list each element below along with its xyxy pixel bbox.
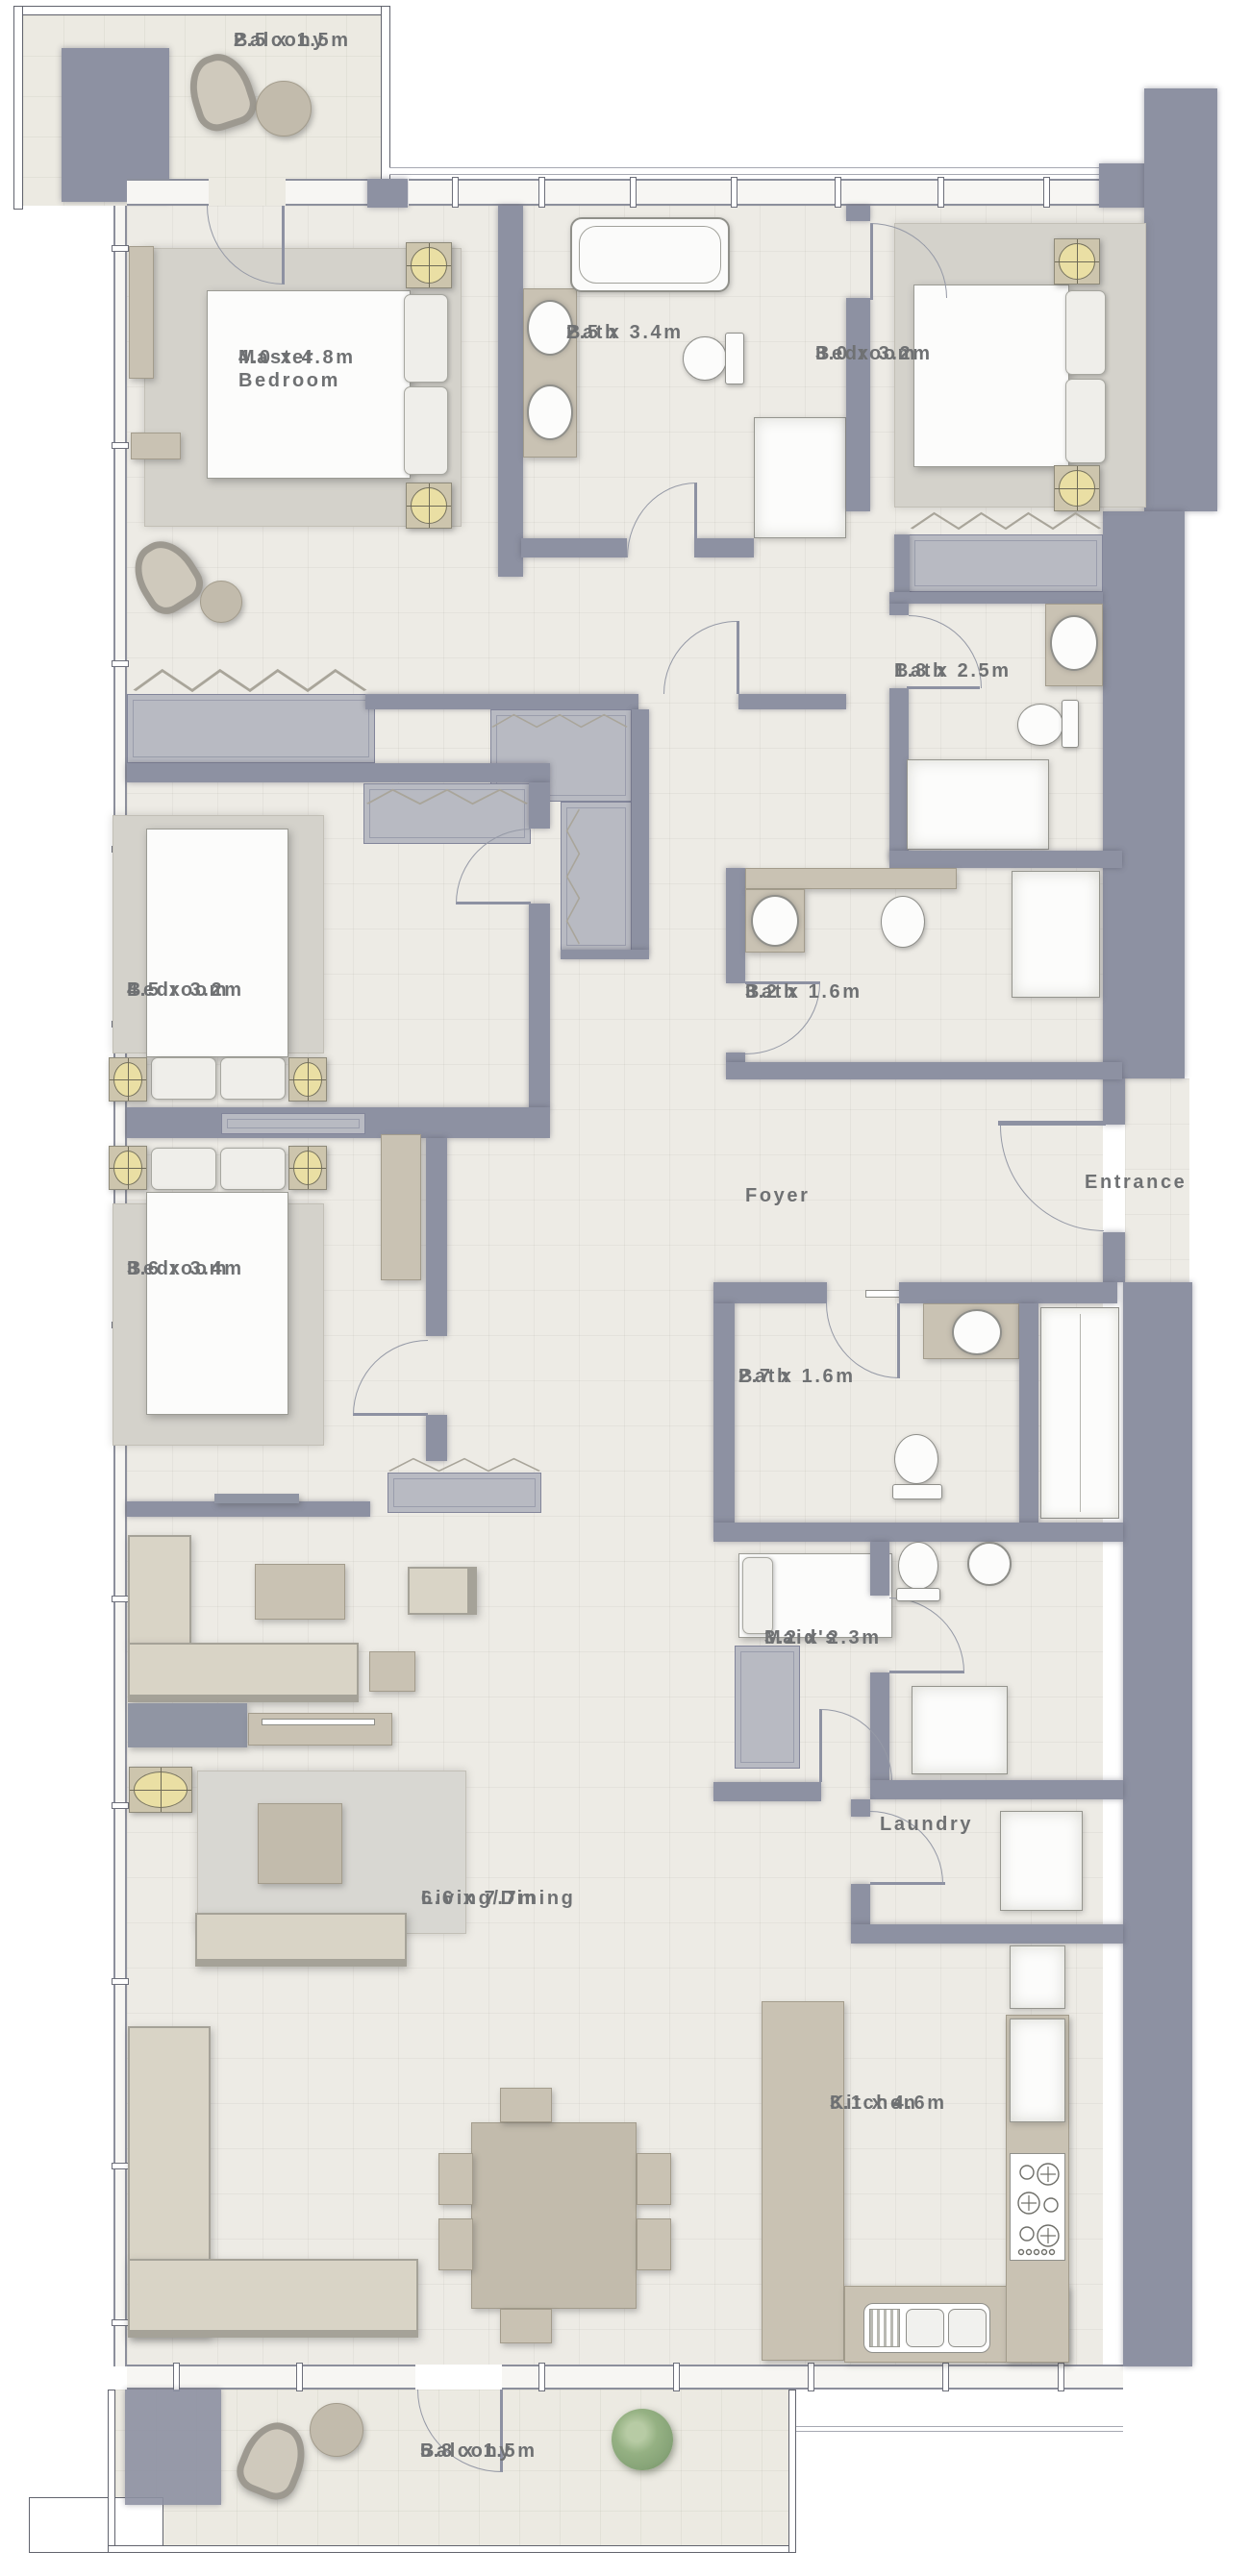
- nightstand-lamp: [288, 1146, 327, 1190]
- sofa: [195, 1913, 407, 1967]
- toilet: [1017, 704, 1063, 746]
- wall: [1099, 163, 1144, 208]
- bed: [146, 1192, 288, 1415]
- wall: [889, 851, 1122, 868]
- balcony-table: [256, 81, 312, 136]
- wall: [889, 604, 909, 615]
- window: [286, 179, 367, 206]
- wall: [426, 1415, 447, 1461]
- window: [127, 179, 209, 206]
- pillow: [220, 1057, 286, 1100]
- mullion: [538, 2363, 545, 2391]
- pillow: [742, 1557, 773, 1634]
- dining-chair: [637, 2218, 671, 2270]
- dining-table: [471, 2122, 637, 2309]
- wardrobe-cabinet: [735, 1646, 800, 1769]
- dresser: [129, 246, 154, 379]
- wall: [846, 298, 870, 511]
- mullion: [112, 442, 129, 449]
- bench: [131, 433, 181, 459]
- wall: [713, 1282, 827, 1303]
- closet-hanging-rail: [135, 668, 365, 693]
- floor-plan: Balcony 2.5 x 1.5m Master Bedroom 4.0 x …: [0, 0, 1250, 2576]
- nightstand-lamp: [406, 483, 452, 529]
- nightstand-lamp: [288, 1057, 327, 1102]
- balcony-storage-box: [125, 2390, 221, 2505]
- wall-exterior-right: [1103, 511, 1185, 1078]
- wall: [1103, 1078, 1125, 1125]
- wardrobe-cabinet: [127, 694, 375, 763]
- toilet: [894, 1434, 938, 1484]
- wall: [889, 592, 1103, 604]
- mullion: [731, 177, 737, 208]
- wall: [632, 709, 649, 952]
- bed: [146, 829, 288, 1057]
- balcony-table: [310, 2403, 363, 2457]
- toilet-tank: [725, 333, 744, 384]
- pillow: [151, 1057, 216, 1100]
- coat-closet: [387, 1473, 541, 1513]
- wall: [870, 1780, 1123, 1799]
- vanity-counter: [745, 868, 957, 889]
- mullion: [673, 2363, 680, 2391]
- wall: [726, 868, 745, 983]
- sink-drainer: [869, 2309, 900, 2347]
- mullion: [835, 177, 841, 208]
- wall: [738, 694, 846, 709]
- slab-edge: [796, 2426, 1123, 2432]
- mullion: [630, 177, 637, 208]
- mullion: [112, 1596, 129, 1602]
- sofa: [128, 1535, 191, 1645]
- mullion: [112, 1978, 129, 1985]
- toilet: [683, 336, 727, 381]
- pillow: [220, 1148, 286, 1190]
- wall: [726, 1053, 745, 1062]
- dining-chair: [637, 2153, 671, 2205]
- wall: [713, 1303, 735, 1523]
- parapet: [13, 6, 390, 15]
- shower: [754, 417, 846, 538]
- appliance: [1010, 2019, 1065, 2122]
- parapet: [108, 2545, 796, 2553]
- coffee-table: [258, 1803, 342, 1884]
- wall: [713, 1782, 821, 1801]
- sink: [751, 895, 799, 947]
- linen-closet: [1040, 1307, 1119, 1519]
- appliance: [1010, 1945, 1065, 2009]
- wall: [498, 206, 523, 577]
- pillow: [404, 294, 448, 383]
- pouf: [369, 1651, 415, 1692]
- sink: [527, 384, 573, 440]
- toilet: [898, 1542, 938, 1590]
- sink: [952, 1309, 1002, 1355]
- shower: [912, 1686, 1008, 1774]
- wall: [851, 1799, 870, 1817]
- washing-machine: [1000, 1811, 1083, 1911]
- mullion: [296, 2363, 303, 2391]
- door-leaf: [737, 621, 739, 694]
- media-wall: [128, 1703, 247, 1747]
- wall: [127, 1501, 370, 1517]
- pillow: [151, 1148, 216, 1190]
- nightstand-lamp: [406, 242, 452, 288]
- sink-bowl: [906, 2309, 944, 2347]
- wall: [367, 179, 408, 208]
- side-table: [200, 581, 242, 623]
- bed: [913, 285, 1069, 467]
- closet-hanging-rail: [389, 1457, 539, 1473]
- wall: [529, 904, 550, 1109]
- tv: [262, 1719, 375, 1725]
- dining-chair: [500, 2309, 552, 2343]
- sink: [1050, 615, 1098, 671]
- mullion: [112, 1802, 129, 1809]
- mullion: [452, 177, 459, 208]
- roof-slab-edge: [389, 167, 1106, 175]
- sink-bowl: [948, 2309, 987, 2347]
- mullion: [1058, 2363, 1064, 2391]
- wall: [529, 782, 550, 829]
- wall: [127, 763, 550, 782]
- parapet: [108, 2390, 115, 2553]
- window: [127, 2365, 415, 2390]
- sink: [967, 1542, 1012, 1586]
- coffee-table: [255, 1564, 345, 1620]
- cooktop-burners: [1010, 2153, 1065, 2261]
- wall: [713, 1523, 1123, 1542]
- bathtub: [570, 217, 730, 292]
- parapet: [13, 6, 23, 210]
- mullion: [808, 2363, 814, 2391]
- parapet: [788, 2390, 796, 2553]
- tv-console: [214, 1494, 299, 1503]
- parapet: [381, 6, 390, 181]
- wall: [726, 1062, 1122, 1079]
- window: [409, 179, 1104, 206]
- dining-chair: [438, 2153, 473, 2205]
- mullion: [112, 660, 129, 667]
- mullion: [173, 2363, 180, 2391]
- pillow: [1065, 290, 1106, 375]
- corner-sofa: [128, 2259, 418, 2338]
- closet-hanging-rail: [492, 713, 627, 729]
- toilet-tank: [896, 1588, 940, 1601]
- wall: [889, 688, 909, 861]
- pillow: [404, 386, 448, 475]
- wall-exterior-right: [1123, 1282, 1192, 2366]
- mullion: [942, 2363, 949, 2391]
- wall: [851, 1924, 1123, 1944]
- mullion: [112, 245, 129, 252]
- mullion: [112, 2163, 129, 2169]
- wall: [846, 206, 870, 221]
- mullion: [937, 177, 944, 208]
- kitchen-peninsula: [762, 2001, 844, 2361]
- nightstand-lamp: [109, 1057, 147, 1102]
- wall: [561, 950, 649, 959]
- closet-hanging-rail: [565, 809, 581, 944]
- wall: [521, 538, 627, 557]
- wall: [1019, 1303, 1038, 1523]
- toilet: [881, 896, 925, 948]
- nightstand-lamp: [109, 1146, 147, 1190]
- wall: [870, 1542, 889, 1596]
- shower: [907, 759, 1049, 850]
- mullion: [538, 177, 545, 208]
- mullion: [1043, 177, 1050, 208]
- dining-chair: [500, 2088, 552, 2122]
- mullion: [112, 2319, 129, 2326]
- armchair: [408, 1567, 477, 1615]
- pillow: [1065, 379, 1106, 463]
- nightstand-lamp: [1054, 465, 1100, 511]
- closet: [221, 1113, 365, 1134]
- floor-lamp: [129, 1767, 192, 1813]
- nightstand-lamp: [1054, 238, 1100, 285]
- toilet-tank: [1062, 700, 1079, 748]
- wall: [851, 1884, 870, 1924]
- shower: [1012, 871, 1100, 998]
- toilet-tank: [892, 1484, 942, 1499]
- wall: [899, 1282, 1117, 1303]
- wall: [426, 1138, 447, 1336]
- wardrobe-cabinet: [909, 534, 1103, 592]
- dining-chair: [438, 2218, 473, 2270]
- sofa: [128, 1643, 359, 1702]
- wall: [1103, 1232, 1125, 1282]
- wall-exterior-right: [1144, 88, 1217, 511]
- closet-hanging-rail: [912, 511, 1100, 531]
- wall: [696, 538, 754, 557]
- wall: [365, 694, 638, 709]
- closet-hanging-rail: [367, 788, 527, 805]
- plant: [612, 2409, 673, 2470]
- dresser: [381, 1134, 421, 1280]
